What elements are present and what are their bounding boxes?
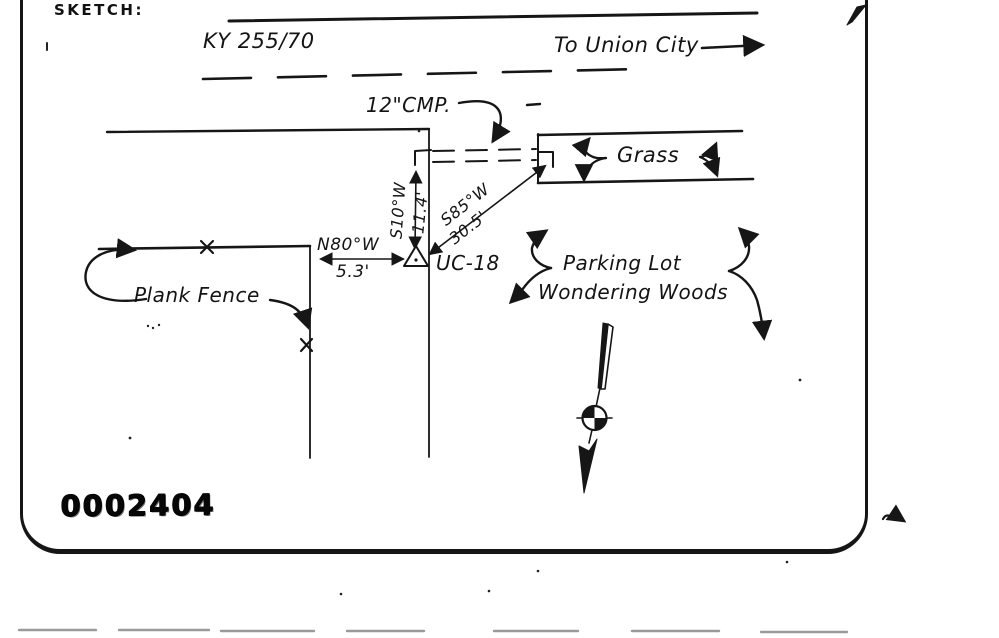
sketch-page: SKETCH: KY 255/70 To Union City 12"CMP. … [0,0,999,638]
direction-label: To Union City [554,33,699,57]
route-label: KY 255/70 [203,29,315,53]
road-edge-line-top [229,13,757,21]
direction-arrow [702,45,762,48]
benchmark-dot [414,258,417,261]
culvert-dashed-line-top [433,149,536,151]
grass-brace-right-lower [700,157,717,175]
parking-brace-right-upper [729,229,749,271]
grass-strip-top-line [538,131,742,135]
stray-dash [527,104,540,105]
road-centerline-dashed [203,69,639,79]
parking-brace-right-lower [729,271,764,338]
road-edge-line-lower [107,129,429,132]
grass-brace-right [700,144,716,157]
grass-brace-left-lower [584,158,606,180]
grass-strip-bottom-line [538,179,753,183]
grass-brace-left [585,139,606,158]
distance-n80w-label: 5.3' [336,262,370,282]
headwall-right [538,152,553,167]
north-arrow-icon [577,323,613,493]
bearing-n80w-label: N80°W [317,235,379,255]
benchmark-triangle [404,246,428,266]
culvert-dashed-line-bottom [433,160,536,162]
parking-lot-label: Parking Lot [563,251,681,275]
form-divider-dashes [19,630,847,632]
squiggle-arrow-icon [883,515,904,521]
sketch-field-label: SKETCH: [54,1,144,19]
stamp-number: 0002404 [60,487,216,522]
fence-leader-arrow-right [270,300,308,327]
grass-label: Grass [617,143,679,167]
pen-mark-icon [847,5,866,25]
cmp-leader-arrow [459,101,501,141]
parking-brace-left-upper [532,231,551,268]
station-label: UC-18 [436,251,500,275]
plank-fence-label: Plank Fence [134,283,260,307]
culvert-label: 12"CMP. [366,93,451,117]
wondering-woods-label: Wondering Woods [538,280,728,304]
sketch-linework [0,0,999,638]
